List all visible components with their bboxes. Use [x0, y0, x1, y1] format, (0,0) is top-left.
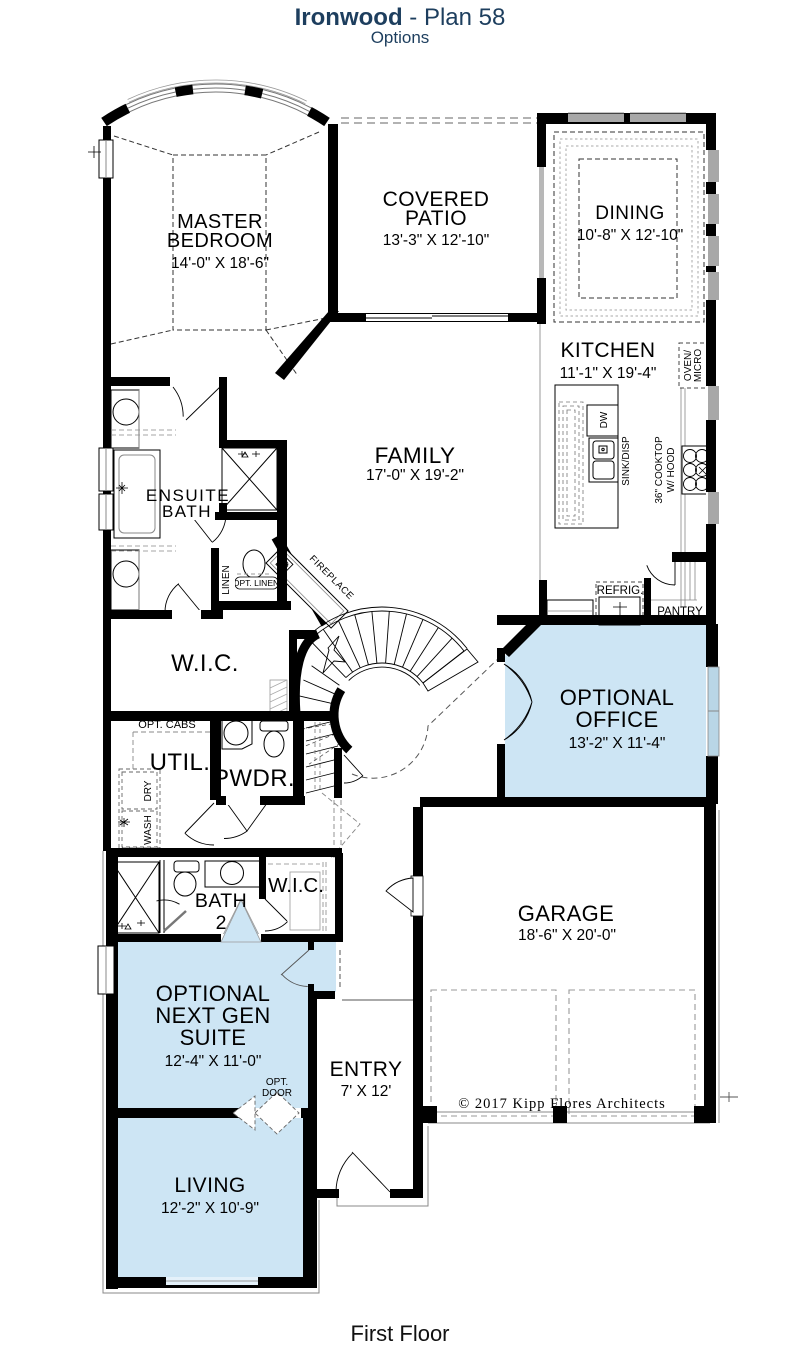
svg-text:OPT.: OPT.: [266, 1077, 288, 1088]
svg-text:SUITE: SUITE: [180, 1025, 247, 1050]
svg-text:OPT. LINEN: OPT. LINEN: [233, 578, 279, 588]
svg-text:GARAGE: GARAGE: [518, 901, 615, 926]
svg-text:FAMILY: FAMILY: [375, 443, 456, 468]
svg-text:LINEN: LINEN: [221, 565, 232, 594]
svg-text:LIVING: LIVING: [174, 1174, 245, 1197]
svg-text:PWDR.: PWDR.: [213, 765, 295, 792]
svg-text:REFRIG.: REFRIG.: [597, 585, 644, 597]
svg-text:W/ HOOD: W/ HOOD: [666, 448, 677, 493]
svg-text:MICRO: MICRO: [693, 349, 704, 383]
svg-text:12'-2" X 10'-9": 12'-2" X 10'-9": [161, 1200, 259, 1217]
svg-text:WASH: WASH: [143, 815, 154, 845]
svg-text:ENTRY: ENTRY: [330, 1058, 403, 1081]
svg-text:18'-6" X 20'-0": 18'-6" X 20'-0": [518, 927, 616, 944]
svg-text:First Floor: First Floor: [351, 1321, 450, 1346]
svg-text:BATH: BATH: [162, 502, 212, 521]
svg-text:36" COOKTOP: 36" COOKTOP: [654, 436, 665, 504]
svg-text:SINK/DISP: SINK/DISP: [621, 436, 632, 486]
svg-text:W.I.C.: W.I.C.: [171, 650, 239, 677]
svg-text:17'-0" X 19'-2": 17'-0" X 19'-2": [366, 467, 464, 484]
svg-text:10'-8" X 12'-10": 10'-8" X 12'-10": [577, 227, 684, 244]
svg-text:12'-4" X 11'-0": 12'-4" X 11'-0": [165, 1053, 262, 1070]
svg-text:14'-0" X 18'-6": 14'-0" X 18'-6": [171, 255, 269, 272]
svg-text:Options: Options: [371, 28, 430, 47]
svg-text:Ironwood - Plan 58: Ironwood - Plan 58: [295, 4, 506, 31]
svg-text:KITCHEN: KITCHEN: [561, 339, 656, 362]
svg-text:BATH: BATH: [195, 890, 247, 912]
svg-text:© 2017 Kipp Flores Architects: © 2017 Kipp Flores Architects: [458, 1096, 666, 1112]
svg-text:7' X 12': 7' X 12': [341, 1083, 392, 1100]
svg-text:13'-2" X 11'-4": 13'-2" X 11'-4": [569, 735, 666, 752]
svg-text:2: 2: [216, 912, 227, 934]
svg-text:W.I.C.: W.I.C.: [268, 874, 324, 897]
svg-text:DRY: DRY: [143, 780, 154, 801]
svg-text:DINING: DINING: [595, 203, 665, 224]
svg-text:OFFICE: OFFICE: [575, 707, 658, 732]
svg-text:11'-1" X 19'-4": 11'-1" X 19'-4": [560, 365, 657, 382]
svg-text:BEDROOM: BEDROOM: [167, 230, 273, 252]
svg-text:13'-3" X 12'-10": 13'-3" X 12'-10": [383, 232, 490, 249]
svg-text:DOOR: DOOR: [262, 1088, 292, 1099]
svg-text:DW: DW: [599, 411, 610, 428]
svg-text:UTIL.: UTIL.: [150, 749, 211, 776]
svg-text:PATIO: PATIO: [405, 207, 467, 230]
